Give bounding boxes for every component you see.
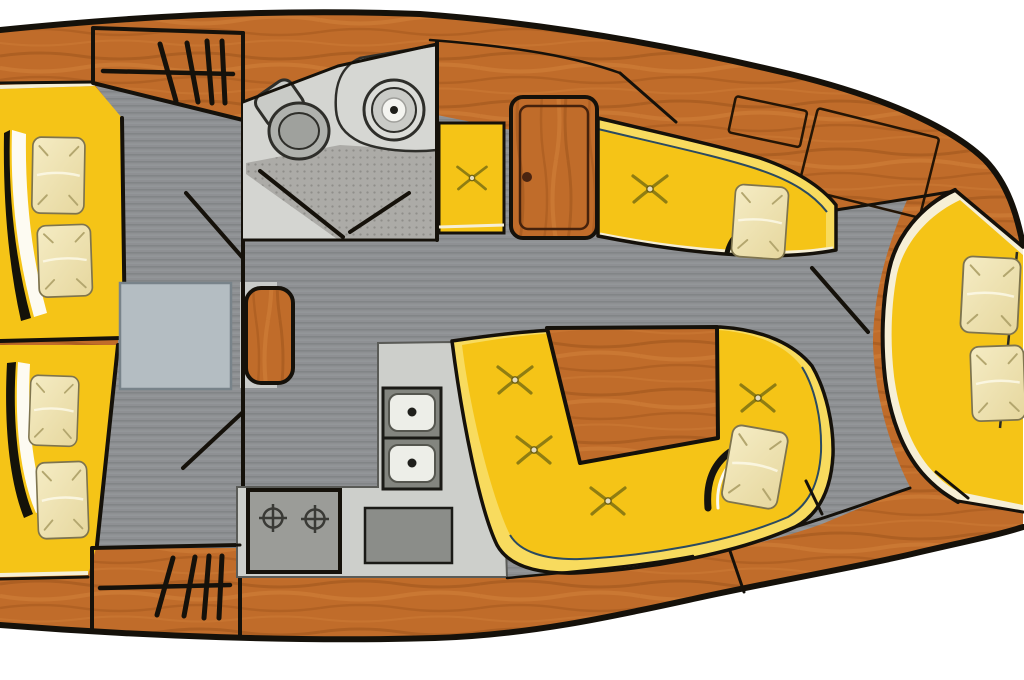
seat-trim	[439, 225, 504, 227]
pillow	[29, 375, 80, 447]
washbasin	[364, 80, 424, 140]
lowered-table-infill	[120, 283, 231, 389]
pillow	[960, 256, 1021, 335]
pillow	[32, 137, 85, 214]
sink-drain	[408, 459, 417, 468]
pillow	[37, 224, 93, 297]
trim-cream-bottom	[0, 573, 88, 575]
pillow	[36, 461, 89, 539]
door-knob	[522, 172, 532, 182]
yacht-plan-drawing	[0, 0, 1024, 680]
dinette	[452, 327, 833, 573]
pillow	[721, 424, 790, 510]
trim-line-top	[0, 82, 93, 83]
trim-line-bottom	[0, 577, 88, 579]
pillow	[970, 345, 1024, 421]
sink-drain	[408, 408, 417, 417]
worktop-lid	[365, 508, 452, 563]
galley-sink-unit	[383, 388, 441, 489]
stool	[246, 288, 293, 383]
pillow	[731, 184, 789, 260]
floor-plan	[0, 0, 1024, 680]
locker-door	[511, 97, 597, 238]
stove	[248, 490, 340, 572]
